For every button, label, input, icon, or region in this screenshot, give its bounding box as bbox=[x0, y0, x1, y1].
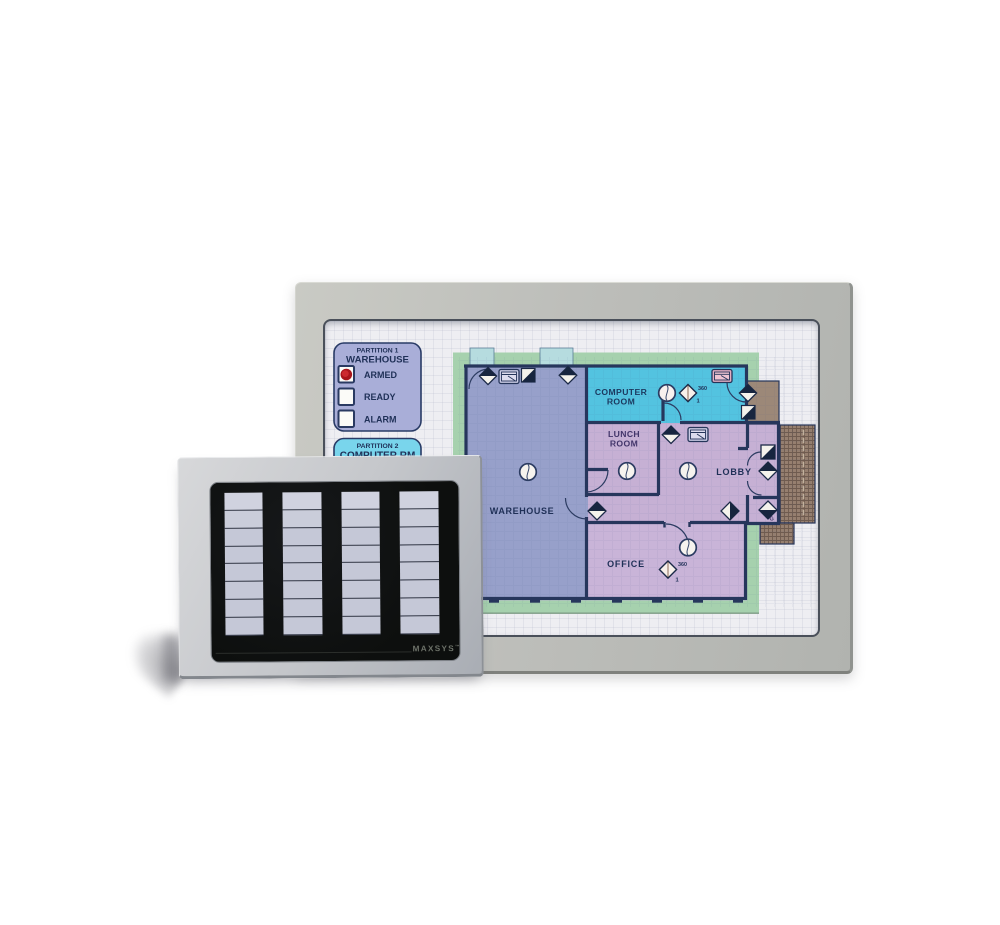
svg-text:PARTITION 2: PARTITION 2 bbox=[357, 443, 399, 450]
svg-text:READY: READY bbox=[364, 392, 396, 402]
svg-text:LUNCH: LUNCH bbox=[608, 429, 640, 439]
svg-text:360: 360 bbox=[698, 386, 707, 392]
svg-text:WAREHOUSE: WAREHOUSE bbox=[490, 506, 554, 516]
svg-text:G: G bbox=[770, 517, 774, 523]
svg-text:WAREHOUSE: WAREHOUSE bbox=[346, 355, 409, 366]
svg-text:ROOM: ROOM bbox=[607, 397, 635, 407]
svg-text:ROOM: ROOM bbox=[610, 439, 638, 449]
svg-text:PARTITION 1: PARTITION 1 bbox=[357, 348, 399, 355]
svg-text:ALARM: ALARM bbox=[364, 415, 397, 425]
svg-text:ARMED: ARMED bbox=[364, 370, 397, 380]
svg-text:LOBBY: LOBBY bbox=[716, 467, 752, 477]
svg-text:OFFICE: OFFICE bbox=[607, 559, 645, 569]
svg-text:360: 360 bbox=[678, 562, 687, 568]
svg-text:COMPUTER: COMPUTER bbox=[595, 387, 648, 397]
